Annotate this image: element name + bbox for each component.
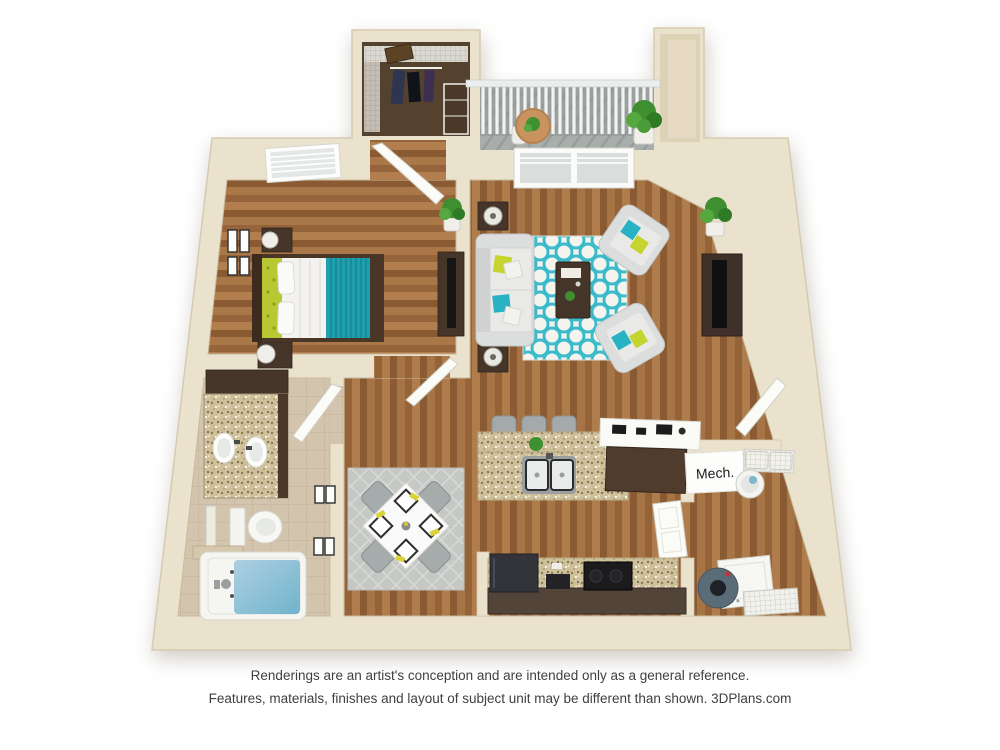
pillow (277, 302, 294, 335)
wall-tower (660, 34, 700, 142)
table-lamp (262, 232, 278, 248)
floorplan-page: Mech. Renderings are an artist's concept… (0, 0, 1000, 750)
toilet (230, 508, 282, 546)
kitchen-wall-stub (477, 552, 489, 616)
tub-faucet (214, 580, 220, 589)
wire-basket (743, 588, 799, 616)
closet-shelf-tower (444, 84, 468, 134)
teal-throw-blanket (326, 258, 370, 338)
faucet (546, 453, 553, 459)
disclaimer: Renderings are an artist's conception an… (0, 664, 1000, 710)
faucet (234, 440, 240, 444)
railing-top-rail (466, 80, 660, 87)
bedroom-window (265, 143, 341, 182)
pillow (277, 262, 295, 295)
storage-basket (746, 451, 769, 469)
storage-basket (770, 452, 793, 470)
wire-shelf (744, 449, 795, 473)
dryer-drum (698, 568, 738, 608)
appliance-counter (600, 418, 701, 449)
footboard (370, 254, 384, 342)
refrigerator (490, 554, 538, 592)
microwave (546, 574, 570, 589)
headboard (252, 254, 262, 342)
tub-water (234, 560, 300, 614)
disclaimer-line-1: Renderings are an artist's conception an… (0, 664, 1000, 687)
bathtub (200, 552, 306, 620)
throw-pillow-white (504, 261, 523, 280)
water-heater (736, 470, 764, 498)
coffee-table (556, 262, 590, 318)
towel-rack (206, 506, 216, 548)
mech-label: Mech. (696, 464, 735, 482)
throw-pillow-white (502, 306, 521, 325)
table-lamp (257, 345, 275, 363)
counter-plant (529, 437, 543, 451)
table-plant (565, 291, 575, 301)
small-appliance (612, 425, 626, 434)
counter-item (552, 563, 562, 569)
upper-cabinet (605, 447, 686, 494)
bedroom-tv (447, 258, 456, 328)
faucet (246, 446, 252, 450)
television (712, 260, 727, 328)
floorplan-rendering: Mech. (0, 0, 1000, 750)
closet (362, 42, 470, 136)
sofa (476, 234, 534, 346)
balcony (466, 80, 662, 150)
kitchen-counter-run (488, 554, 686, 614)
disclaimer-line-2: Features, materials, finishes and layout… (0, 687, 1000, 710)
bed (252, 254, 384, 342)
closet-wire-shelf (364, 46, 468, 62)
double-sink (522, 453, 576, 494)
french-doors (514, 148, 634, 188)
